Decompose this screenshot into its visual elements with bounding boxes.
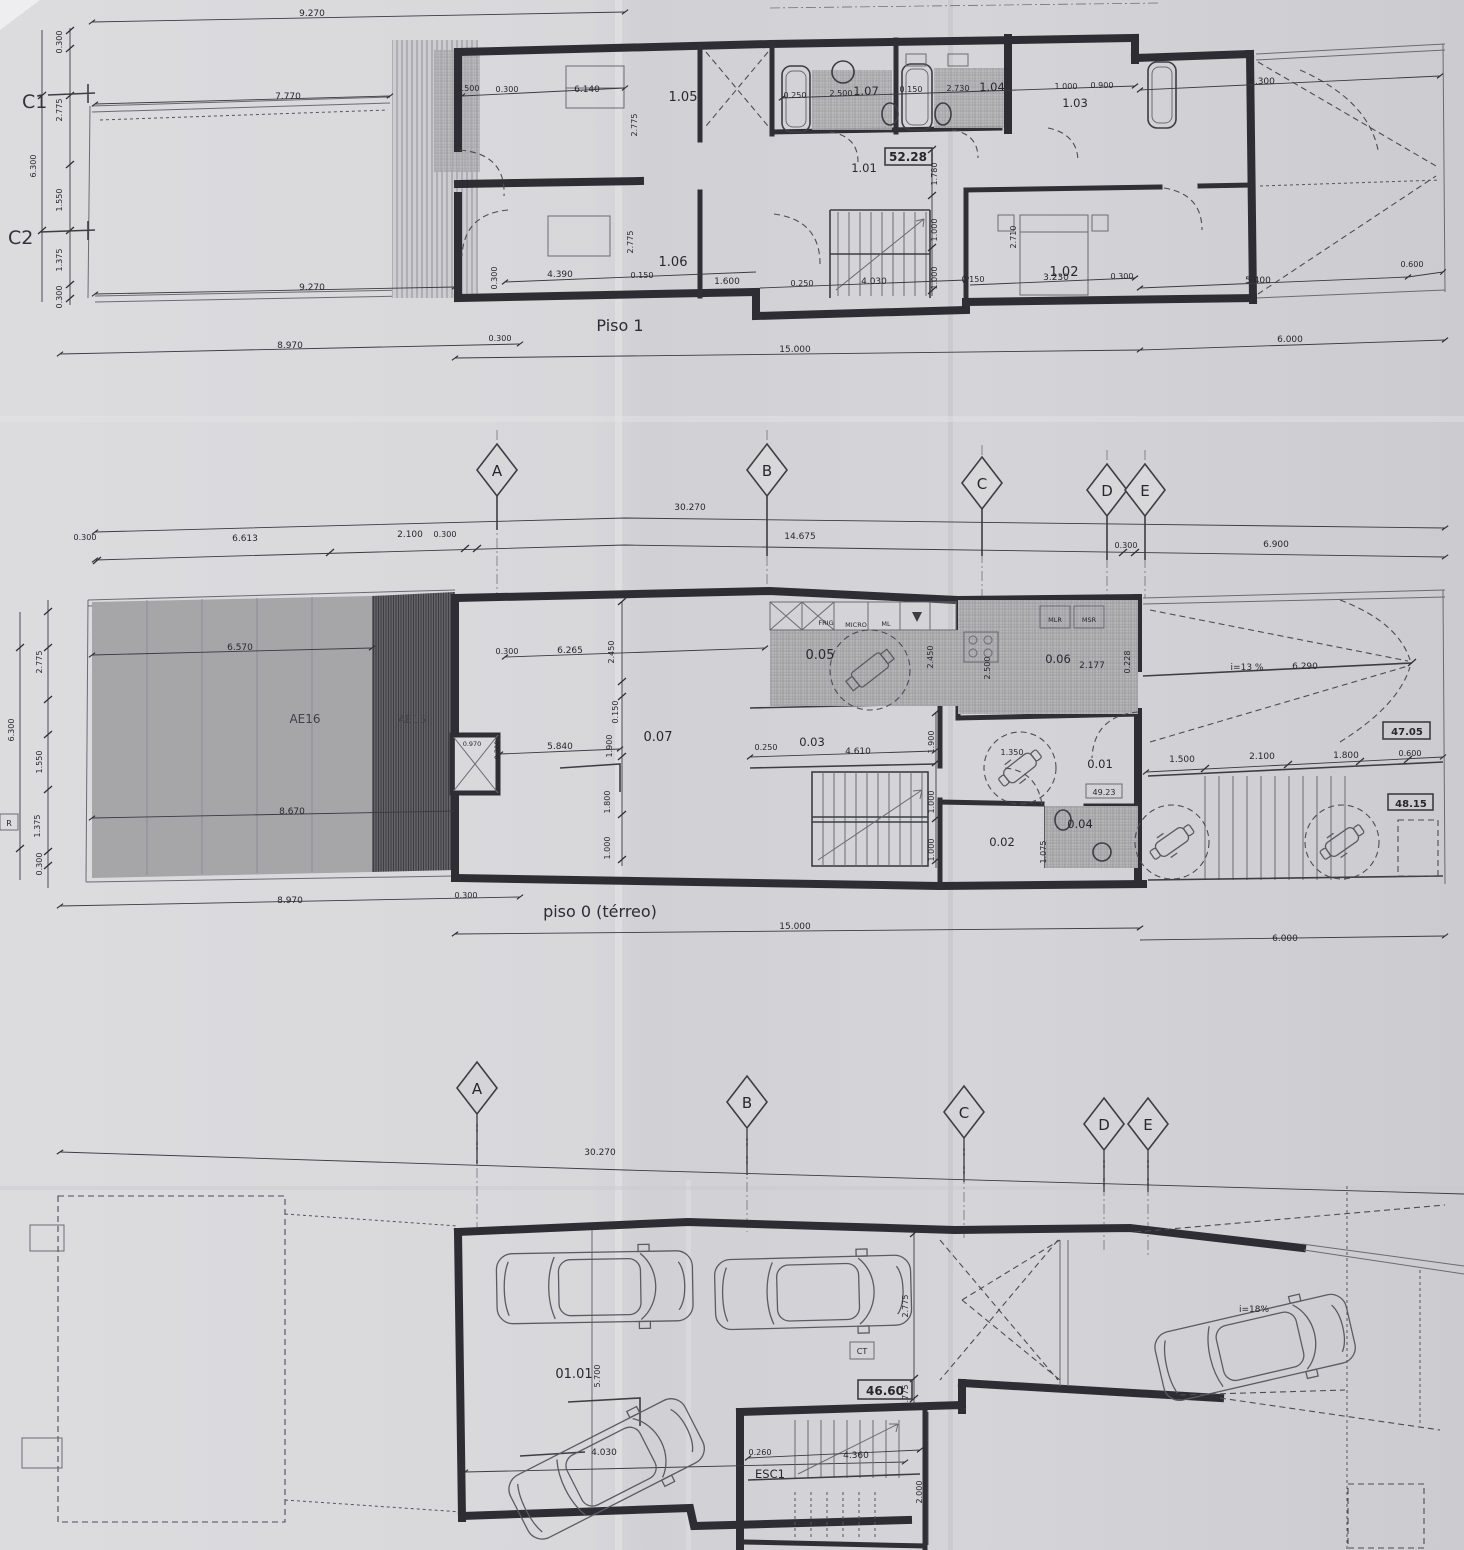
area-label: 47.05 [1391, 727, 1423, 738]
dim-label: 4.360 [843, 1451, 869, 1461]
appliance-label-micro: MICRO [845, 621, 867, 629]
dim-label: 2.177 [1079, 661, 1105, 671]
dim-label: 1.550 [55, 189, 64, 212]
dim-label: 0.300 [489, 334, 512, 343]
dim-label: 5.400 [1245, 276, 1271, 286]
ct-label: CT [857, 1347, 868, 1356]
dim-label: 2.450 [607, 641, 616, 664]
grid-label-a: A [472, 1080, 483, 1098]
appliance-label-frig: FRIG [818, 619, 833, 627]
zone-label-ae16: AE16 [289, 712, 320, 726]
dim-label: 0.260 [749, 1448, 772, 1457]
grid-ref-c1: C1 [22, 91, 47, 113]
grid-ref-c2: C2 [8, 227, 33, 249]
dim-label: 8.970 [277, 896, 303, 906]
dim-label: 0.300 [496, 85, 519, 94]
dim-label: 8.670 [279, 807, 305, 817]
dim-label: 1.900 [605, 735, 614, 758]
area-label: 48.15 [1395, 799, 1427, 810]
stair-label-esc1: ESC1 [755, 1467, 785, 1481]
grid-label-b: B [742, 1094, 752, 1112]
area-label: 49.23 [1093, 788, 1116, 797]
room-label-106: 1.06 [659, 255, 688, 270]
dim-label: 3.230 [1043, 273, 1069, 283]
dim-label: 6.000 [1272, 934, 1298, 944]
grid-label-c: C [959, 1104, 969, 1122]
dim-label: 0.250 [755, 743, 778, 752]
dim-label: 4.030 [591, 1448, 617, 1458]
dim-label: 0.300 [496, 647, 519, 656]
dim-label: 14.675 [784, 532, 816, 542]
dim-label: 5.840 [547, 742, 573, 752]
dim-label: 1.000 [927, 791, 936, 814]
scanned-floor-plan-sheet: C1 C2 Piso 1 52.28 1.05 1.06 1.07 1.04 1… [0, 0, 1464, 1550]
dim-label: 1.375 [55, 249, 64, 272]
appliance-label-msr: MSR [1082, 616, 1097, 624]
room-label-003: 0.03 [799, 735, 825, 749]
dim-label: 0.150 [962, 275, 985, 284]
dim-label: 0.970 [463, 740, 482, 748]
floor-plan-drawing: C1 C2 Piso 1 52.28 1.05 1.06 1.07 1.04 1… [0, 0, 1464, 1550]
room-label-006: 0.06 [1045, 652, 1071, 666]
dim-label: 1.800 [603, 791, 612, 814]
dim-label: 1.800 [1333, 751, 1359, 761]
zone-label-ae15: AE15 [398, 713, 426, 726]
dim-label: 9.270 [299, 283, 325, 293]
dim-label: 0.300 [455, 891, 478, 900]
dim-label: 0.250 [791, 279, 814, 288]
zone-ae15-deck [372, 592, 455, 872]
dim-label: 0.300 [1111, 272, 1134, 281]
dim-label: 0.600 [1399, 749, 1422, 758]
room-label-007: 0.07 [644, 730, 673, 745]
dim-label: 4.030 [861, 277, 887, 287]
room-label-005: 0.05 [806, 648, 835, 663]
dim-label: 1.375 [33, 815, 42, 838]
dim-label: 2.100 [1249, 752, 1275, 762]
dim-label: 1.000 [1055, 82, 1078, 91]
room-label-105: 1.05 [669, 90, 698, 105]
room-label-107: 1.07 [853, 84, 879, 98]
dim-label: 2.775 [626, 231, 635, 254]
dim-label: 1.350 [1001, 748, 1024, 757]
dim-label: 2.775 [630, 114, 639, 137]
dim-label: 1.075 [1039, 841, 1048, 864]
dim-label: 6.000 [1277, 335, 1303, 345]
dim-label: 2.450 [926, 646, 935, 669]
floor1-area-label: 52.28 [889, 150, 927, 164]
dim-label: 2.775 [35, 651, 44, 674]
ramp-slope-label: i=13 % [1231, 663, 1264, 673]
dim-label: 1.550 [35, 751, 44, 774]
ramp-slope-label: i=18% [1239, 1305, 1269, 1315]
dim-label: 0.900 [1091, 81, 1114, 90]
ref-label-r: R [6, 819, 12, 828]
dim-label: 0.300 [55, 31, 64, 54]
dim-label: 2.500 [830, 89, 853, 98]
dim-label: 1.000 [930, 267, 939, 290]
dim-label: 6.140 [574, 85, 600, 95]
room-label-0101: 01.01 [555, 1367, 592, 1382]
dim-label: 0.300 [434, 530, 457, 539]
dim-label: 1.000 [927, 839, 936, 862]
dim-label: 0.600 [1401, 260, 1424, 269]
dim-label: 0.300 [490, 267, 499, 290]
zone-ae16-patio [92, 596, 372, 878]
dim-label: 5.700 [593, 1365, 602, 1388]
dim-label: 0.250 [784, 91, 807, 100]
dim-label: 0.150 [900, 85, 923, 94]
room-label-101: 1.01 [851, 161, 877, 175]
dim-label: 6.300 [7, 719, 16, 742]
dim-label: 7.770 [275, 92, 301, 102]
dim-label: 0.150 [611, 701, 620, 724]
grid-label-c: C [977, 475, 987, 493]
grid-label-e: E [1140, 482, 1149, 500]
room-label-103: 1.03 [1062, 96, 1088, 110]
dim-label: 2.730 [947, 84, 970, 93]
grid-label-e: E [1143, 1116, 1152, 1134]
dim-label: 1.000 [930, 219, 939, 242]
dim-label: 1.780 [930, 163, 939, 186]
dim-label: 6.900 [1263, 540, 1289, 550]
dim-label: 1.900 [927, 731, 936, 754]
dim-label: 1.600 [714, 277, 740, 287]
room-label-004: 0.04 [1067, 817, 1093, 831]
dim-label: 15.000 [779, 922, 811, 932]
dim-label: 2.710 [1009, 226, 1018, 249]
dim-label: 6.265 [557, 646, 583, 656]
grid-label-b: B [762, 462, 772, 480]
dim-label: 2.775 [55, 99, 64, 122]
basement-area-label: 46.60 [866, 1384, 904, 1398]
dim-label: 2.775 [901, 1295, 910, 1318]
dim-label: 6.300 [1249, 77, 1275, 87]
dim-label: 0.300 [35, 853, 44, 876]
grid-label-d: D [1098, 1116, 1110, 1134]
dim-label: 1.500 [457, 84, 480, 93]
room-label-104: 1.04 [979, 80, 1005, 94]
dim-label: 6.570 [227, 643, 253, 653]
ramp-length-label: 6.290 [1292, 662, 1318, 672]
dim-label: 1.500 [1169, 755, 1195, 765]
dim-label: 8.970 [277, 341, 303, 351]
dim-label: 30.270 [674, 503, 706, 513]
dim-label: 9.270 [299, 9, 325, 19]
dim-label: 6.300 [29, 155, 38, 178]
dim-label: 0.300 [55, 286, 64, 309]
dim-label: 30.270 [584, 1148, 616, 1158]
dim-label: 2.100 [397, 530, 423, 540]
dim-label: 15.000 [779, 345, 811, 355]
dim-label: 0.228 [1123, 651, 1132, 674]
dim-label: 2.500 [983, 657, 992, 680]
dim-label: 4.390 [547, 270, 573, 280]
dim-label: 2.000 [915, 1481, 924, 1504]
dim-label: 4.610 [845, 747, 871, 757]
grid-label-d: D [1101, 482, 1113, 500]
grid-label-a: A [492, 462, 503, 480]
dim-label: 0.300 [74, 533, 97, 542]
room-label-001: 0.01 [1087, 757, 1113, 771]
dim-label: 0.775 [901, 1385, 910, 1408]
floor1-title: Piso 1 [596, 316, 643, 335]
dim-label: 1.000 [603, 837, 612, 860]
dim-label: 6.613 [232, 534, 258, 544]
dim-label: 0.150 [631, 271, 654, 280]
dim-label: 0.300 [493, 741, 501, 760]
floor0-title: piso 0 (térreo) [543, 902, 657, 921]
dim-label: 0.300 [1115, 541, 1138, 550]
appliance-label-mlr: MLR [1048, 616, 1062, 624]
room-label-002: 0.02 [989, 835, 1015, 849]
appliance-label-ml: ML [881, 620, 891, 628]
